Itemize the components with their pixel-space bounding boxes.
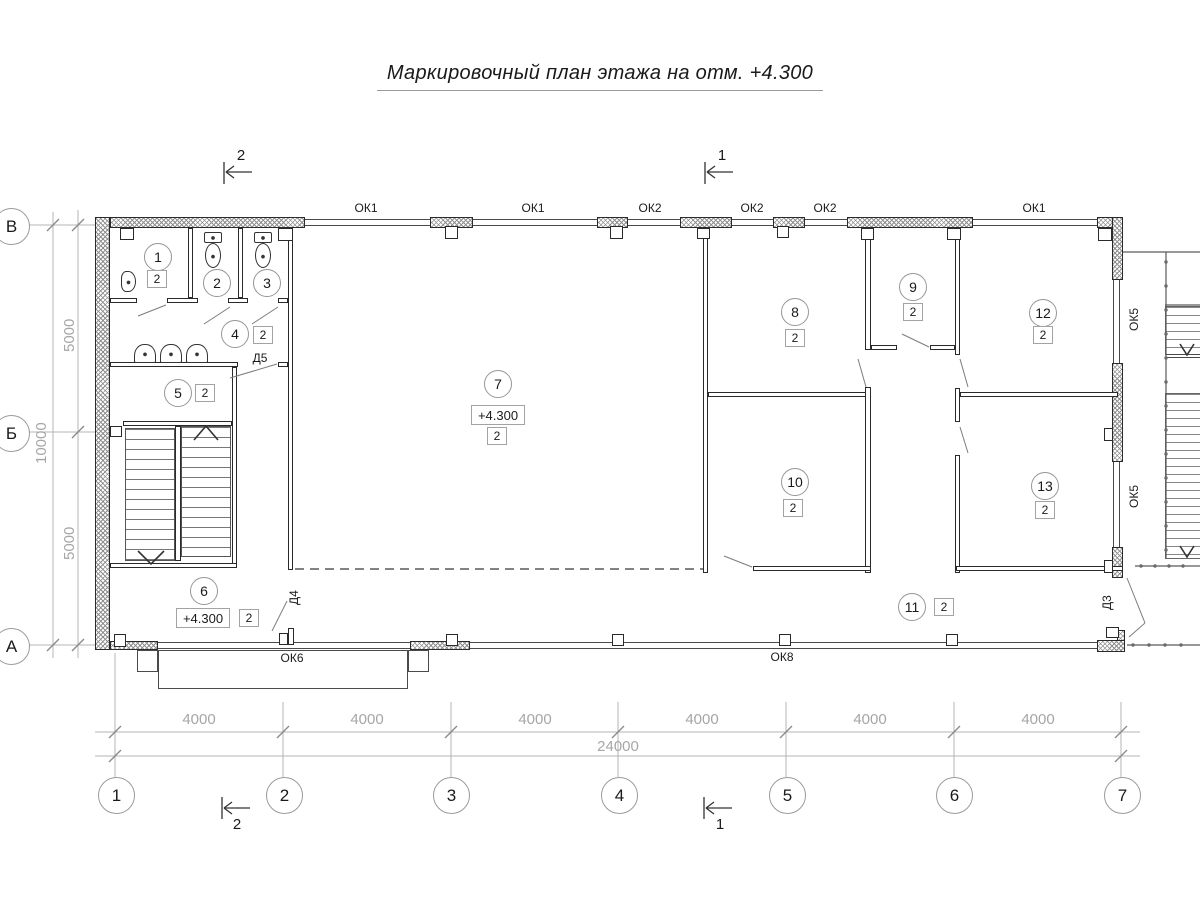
column (445, 226, 458, 239)
wall-room9-left-bot (865, 387, 871, 573)
window-label-ok2-a: ОК2 (633, 201, 667, 215)
toilet-bowl (255, 243, 271, 268)
wall-hall-left (288, 228, 293, 570)
axis-circle-b: Б (0, 415, 30, 452)
dim-4000-2: 4000 (345, 711, 389, 728)
stair-arrows (138, 344, 1194, 564)
wall-cubicle-b2 (167, 298, 198, 303)
section-label-1-bottom: 1 (712, 816, 728, 833)
wall-room9-bottom-b (930, 345, 955, 350)
porch-step-left (137, 650, 158, 672)
window-band-ok1-c (973, 219, 1097, 226)
axis-circle-1: 1 (98, 777, 135, 814)
wall-hall-right (703, 228, 708, 573)
toilet-bowl (205, 243, 221, 268)
section-label-2-bottom: 2 (229, 816, 245, 833)
page-title: Маркировочный план этажа на отм. +4.300 (0, 62, 1200, 91)
window-band-ok1-a (305, 219, 430, 226)
room-circle-7: 7 (484, 370, 512, 398)
room-type-8: 2 (785, 329, 805, 347)
column (446, 634, 458, 646)
dim-24000: 24000 (590, 738, 646, 755)
wall-room9-bottom-a (871, 345, 897, 350)
wall-room12-bottom (960, 392, 1118, 397)
room-circle-9: 9 (899, 273, 927, 301)
sink (186, 344, 208, 363)
sink (134, 344, 156, 363)
stair-divider (175, 426, 181, 561)
window-band-ok2-c (805, 219, 847, 226)
window-band-ok5-a (1113, 280, 1120, 363)
window-label-ok1-c: ОК1 (1017, 201, 1051, 215)
wall-room13-bottom (956, 566, 1123, 571)
column (697, 228, 710, 239)
door-leaf-d4-b (288, 628, 294, 645)
column (946, 634, 958, 646)
room-circle-10: 10 (781, 468, 809, 496)
room-circle-11: 11 (898, 593, 926, 621)
room-circle-1: 1 (144, 243, 172, 271)
window-label-ok1-a: ОК1 (349, 201, 383, 215)
dim-4000-4: 4000 (680, 711, 724, 728)
elevation-mark-room6: +4.300 (176, 608, 230, 628)
wall-stair-right (232, 367, 237, 568)
window-label-ok2-b: ОК2 (735, 201, 769, 215)
door-leaf-d4-a (279, 633, 288, 645)
column (861, 228, 874, 240)
door-leaf-d3 (1106, 627, 1119, 638)
wall-room8-bottom (708, 392, 868, 397)
section-label-1-top: 1 (714, 147, 730, 164)
room-type-9: 2 (903, 303, 923, 321)
axis-circle-5: 5 (769, 777, 806, 814)
door-label-d5: Д5 (247, 351, 273, 365)
wall-cubicle-b4 (278, 298, 288, 303)
room-circle-6: 6 (190, 577, 218, 605)
dim-10000: 10000 (33, 408, 50, 464)
window-band-ok1-b (473, 219, 597, 226)
column (612, 634, 624, 646)
wall-stair-bottom (110, 563, 237, 568)
column (777, 226, 789, 238)
dim-4000-6: 4000 (1016, 711, 1060, 728)
wall-room12-left-c (955, 455, 960, 573)
window-label-ok1-b: ОК1 (516, 201, 550, 215)
section-marks (222, 162, 733, 819)
room-circle-5: 5 (164, 379, 192, 407)
wall-top-4 (680, 217, 732, 228)
room-circle-4: 4 (221, 320, 249, 348)
wall-right-2 (1112, 363, 1123, 462)
door-label-d4: Д4 (287, 580, 301, 616)
porch-step-right (408, 650, 429, 672)
column (610, 226, 623, 239)
wall-room10-bottom (753, 566, 871, 571)
window-label-ok5-b: ОК5 (1127, 476, 1141, 518)
wall-room5-stub (278, 362, 288, 367)
axis-circle-a: А (0, 628, 30, 665)
dim-4000-1: 4000 (177, 711, 221, 728)
stair-flight-right (181, 426, 231, 557)
room-type-7: 2 (487, 427, 507, 445)
dim-5000-top: 5000 (61, 308, 78, 352)
wall-top-1 (110, 217, 305, 228)
room-circle-3: 3 (253, 269, 281, 297)
exterior-stair-flight-bottom (1165, 393, 1200, 559)
section-label-2-top: 2 (233, 147, 249, 164)
axis-circle-v: В (0, 208, 30, 245)
dim-5000-bottom: 5000 (61, 516, 78, 560)
room-type-12: 2 (1033, 326, 1053, 344)
window-band-ok2-b (732, 219, 773, 226)
wall-corner-br-h (1097, 640, 1125, 652)
window-band-ok2-a (628, 219, 680, 226)
wall-top-6 (847, 217, 973, 228)
room-type-13: 2 (1035, 501, 1055, 519)
axis-circle-7: 7 (1104, 777, 1141, 814)
room-type-5: 2 (195, 384, 215, 402)
window-band-ok5-b (1113, 462, 1120, 547)
pilaster (1104, 428, 1113, 441)
wall-left (95, 217, 110, 650)
room-type-4: 2 (253, 326, 273, 344)
column (1098, 228, 1112, 241)
sink (160, 344, 182, 363)
room-type-11: 2 (934, 598, 954, 616)
column (779, 634, 791, 646)
wall-room9-left-top (865, 228, 871, 350)
exterior-stair-landing (1165, 354, 1200, 358)
room-circle-2: 2 (203, 269, 231, 297)
window-label-ok5-a: ОК5 (1127, 299, 1141, 341)
column (120, 228, 134, 240)
column (947, 228, 961, 240)
window-label-ok8: ОК8 (765, 650, 799, 664)
axis-circle-6: 6 (936, 777, 973, 814)
axis-circle-4: 4 (601, 777, 638, 814)
door-label-d3: Д3 (1100, 585, 1114, 621)
room-type-10: 2 (783, 499, 803, 517)
room-circle-8: 8 (781, 298, 809, 326)
toilet-tank (254, 232, 272, 243)
elevation-mark-room7: +4.300 (471, 405, 525, 425)
wall-cubicle-p1 (188, 228, 193, 298)
column (278, 228, 293, 241)
room-circle-13: 13 (1031, 472, 1059, 500)
toilet-tank (204, 232, 222, 243)
wall-cubicle-p2 (238, 228, 243, 298)
room-type-6: 2 (239, 609, 259, 627)
wall-cubicle-b1 (110, 298, 137, 303)
window-label-ok2-c: ОК2 (808, 201, 842, 215)
wall-right-1 (1112, 217, 1123, 280)
stair-flight-left (125, 428, 175, 561)
urinal (121, 271, 136, 292)
column (114, 634, 126, 647)
pilaster (1104, 560, 1113, 573)
room-type-1: 2 (147, 270, 167, 288)
page-title-text: Маркировочный план этажа на отм. +4.300 (377, 62, 823, 91)
dim-4000-5: 4000 (848, 711, 892, 728)
room-circle-12: 12 (1029, 299, 1057, 327)
axis-circle-3: 3 (433, 777, 470, 814)
exterior-stair-flight-top (1165, 306, 1200, 355)
axis-circle-2: 2 (266, 777, 303, 814)
dim-4000-3: 4000 (513, 711, 557, 728)
wall-cubicle-b3 (228, 298, 248, 303)
pilaster (110, 426, 122, 437)
floor-plan-sheet: Маркировочный план этажа на отм. +4.300 (0, 0, 1200, 900)
wall-right-3 (1112, 547, 1123, 578)
window-label-ok6: ОК6 (275, 651, 309, 665)
wall-room12-left-a (955, 228, 960, 355)
wall-bottom-pier (410, 641, 470, 650)
